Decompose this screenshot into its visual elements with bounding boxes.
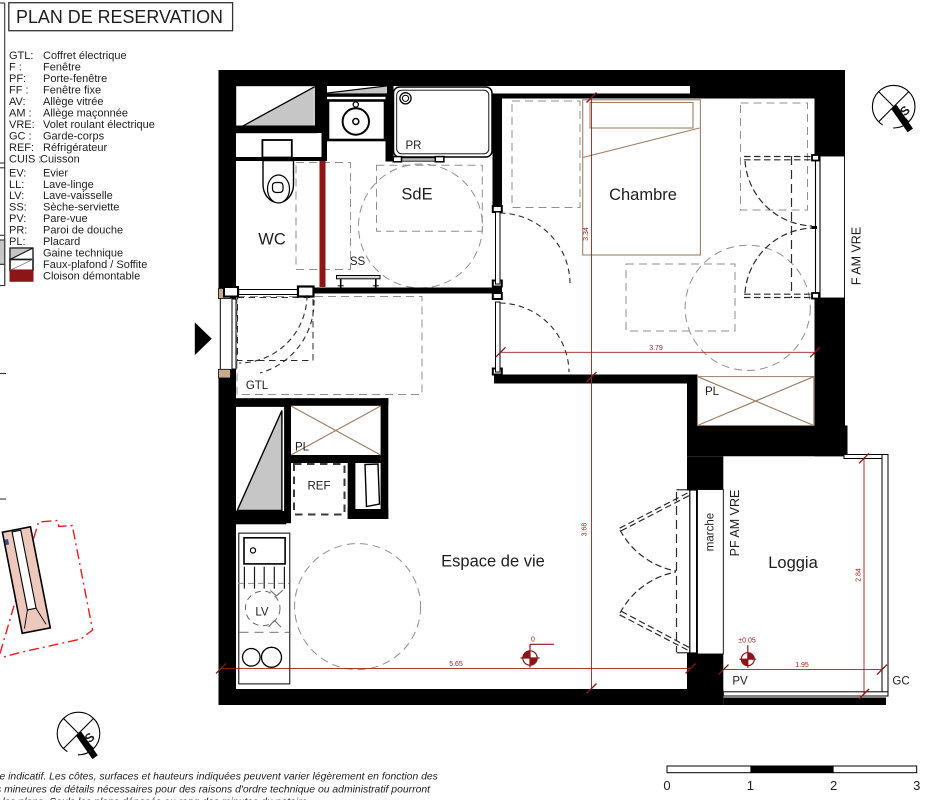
svg-text:Porte-fenêtre: Porte-fenêtre: [43, 73, 107, 85]
svg-text:EV:: EV:: [9, 167, 26, 179]
svg-text:GC: GC: [892, 676, 909, 688]
svg-text:Fenêtre fixe: Fenêtre fixe: [43, 85, 101, 97]
svg-text:re indicatif. Les côtes, surfa: re indicatif. Les côtes, surfaces et hau…: [0, 772, 438, 783]
svg-text:0: 0: [663, 778, 670, 793]
svg-text:GC :: GC :: [9, 131, 32, 143]
svg-text:Fenêtre: Fenêtre: [43, 62, 81, 74]
svg-text:PLAN DE RESERVATION: PLAN DE RESERVATION: [16, 6, 223, 27]
svg-text:SdE: SdE: [401, 186, 432, 204]
svg-text:1.95: 1.95: [795, 662, 809, 669]
svg-text:3.68: 3.68: [582, 523, 589, 537]
svg-text:LV:: LV:: [9, 190, 24, 202]
svg-text:VRE:: VRE:: [9, 119, 35, 131]
svg-text:Allège maçonnée: Allège maçonnée: [43, 108, 128, 120]
svg-text:SS:: SS:: [9, 202, 27, 214]
svg-text:Allège vitrée: Allège vitrée: [43, 96, 104, 108]
svg-text:PL: PL: [295, 442, 310, 454]
svg-text:LV: LV: [255, 607, 269, 619]
svg-text:Gaine technique: Gaine technique: [43, 247, 123, 259]
svg-text:AM :: AM :: [9, 108, 32, 120]
svg-text:PV:: PV:: [9, 213, 26, 225]
svg-text:Sèche-serviette: Sèche-serviette: [43, 202, 119, 214]
svg-text:CUIS :: CUIS :: [9, 153, 41, 165]
svg-text:Cuisson: Cuisson: [40, 153, 80, 165]
svg-text:GTL: GTL: [246, 380, 269, 392]
svg-text:REF: REF: [308, 481, 331, 493]
svg-text:PF AM VRE: PF AM VRE: [728, 490, 742, 557]
svg-text:marche: marche: [705, 513, 717, 551]
svg-text:Evier: Evier: [43, 167, 68, 179]
svg-text:WC: WC: [258, 231, 286, 249]
svg-text:2: 2: [830, 778, 837, 793]
svg-text:FF :: FF :: [9, 85, 29, 97]
svg-text:PL:: PL:: [9, 236, 26, 248]
svg-text:PL: PL: [705, 386, 720, 398]
svg-text:Faux-plafond / Soffite: Faux-plafond / Soffite: [43, 259, 147, 271]
svg-text:PR:: PR:: [9, 224, 27, 236]
svg-text:Coffret électrique: Coffret électrique: [43, 50, 127, 62]
svg-text:3.34: 3.34: [583, 227, 590, 241]
svg-text:Lave-linge: Lave-linge: [43, 179, 94, 191]
svg-text:PV: PV: [732, 676, 748, 688]
svg-text:SS: SS: [350, 256, 366, 268]
svg-text:F :: F :: [9, 62, 22, 74]
svg-text:PF:: PF:: [9, 73, 26, 85]
svg-text:3.79: 3.79: [649, 345, 663, 352]
svg-text:AV:: AV:: [9, 96, 26, 108]
svg-text:Pare-vue: Pare-vue: [43, 213, 88, 225]
svg-text:Placard: Placard: [43, 236, 80, 248]
svg-text:Lave-vaisselle: Lave-vaisselle: [43, 190, 113, 202]
svg-text:Garde-corps: Garde-corps: [43, 131, 105, 143]
svg-text:Espace de vie: Espace de vie: [441, 553, 545, 571]
svg-text:Paroi de douche: Paroi de douche: [43, 224, 123, 236]
svg-text:5.65: 5.65: [449, 661, 463, 668]
svg-text:±0.05: ±0.05: [738, 638, 756, 645]
svg-text:Chambre: Chambre: [609, 186, 677, 204]
svg-text:2.84: 2.84: [856, 568, 863, 582]
svg-text:Loggia: Loggia: [768, 554, 818, 572]
svg-text:Cloison démontable: Cloison démontable: [43, 270, 140, 282]
svg-text:1: 1: [747, 778, 754, 793]
svg-text:3: 3: [913, 778, 920, 793]
svg-text:LL:: LL:: [9, 179, 24, 191]
svg-text:PR: PR: [406, 140, 422, 152]
svg-text:GTL:: GTL:: [9, 50, 33, 62]
svg-text:Volet roulant électrique: Volet roulant électrique: [43, 119, 155, 131]
svg-text:0: 0: [531, 637, 535, 644]
svg-text:F AM VRE: F AM VRE: [850, 227, 864, 285]
svg-text:s mineures de détails nécessai: s mineures de détails nécessaires pour d…: [0, 785, 431, 796]
